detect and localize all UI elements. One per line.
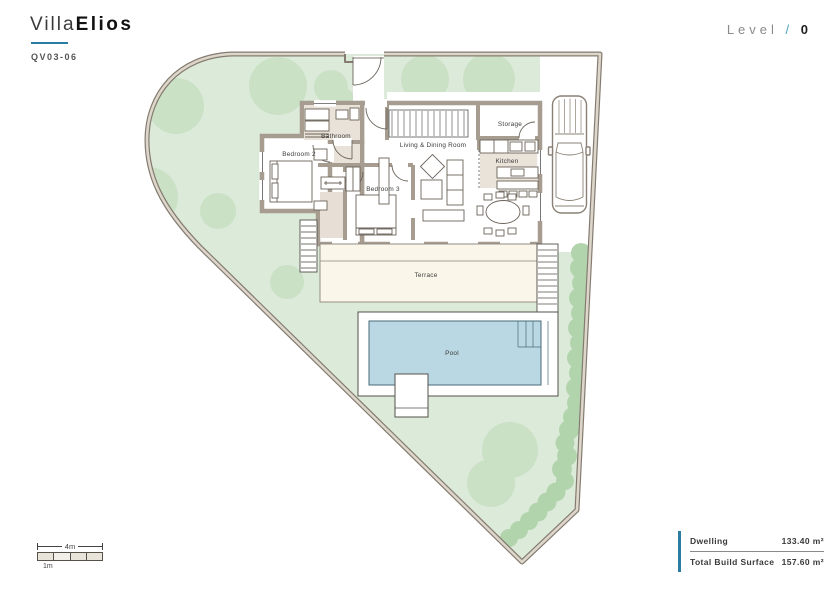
brand-bold: Elios xyxy=(76,14,134,35)
summary-value: 133.40 m² xyxy=(782,536,824,546)
scale-ruler: 4m xyxy=(37,542,103,551)
area-summary: Dwelling 133.40 m² Total Build Surface 1… xyxy=(678,531,824,572)
bench xyxy=(423,210,464,221)
sink xyxy=(350,108,359,120)
scale-total-label: 4m xyxy=(62,542,78,551)
scale-segment xyxy=(71,553,87,560)
nightstand xyxy=(314,149,327,160)
summary-row-total: Total Build Surface 157.60 m² xyxy=(690,552,824,572)
staircase xyxy=(389,110,468,137)
car xyxy=(549,96,591,213)
steps-left xyxy=(300,220,317,272)
level-separator: / xyxy=(786,22,794,37)
sofa xyxy=(447,160,463,205)
scale-segments xyxy=(37,552,103,561)
label-kitchen: Kitchen xyxy=(495,158,518,165)
brand-title: VillaElios xyxy=(30,14,133,36)
label-living: Living & Dining Room xyxy=(400,142,466,149)
summary-value: 157.60 m² xyxy=(782,557,824,567)
floor-plan-page: Bathroom Bedroom 2 Bedroom 3 Living & Di… xyxy=(0,0,840,591)
toilet xyxy=(336,110,348,119)
scale-unit-label: 1m xyxy=(43,563,103,570)
label-bedroom3: Bedroom 3 xyxy=(366,186,400,193)
level-indicator: Level / 0 xyxy=(727,22,812,37)
level-value: 0 xyxy=(801,22,812,37)
dryer xyxy=(305,121,329,131)
brand-light: Villa xyxy=(30,14,76,35)
cooktop xyxy=(511,169,524,176)
scale-segment xyxy=(54,553,70,560)
label-storage: Storage xyxy=(498,121,522,128)
label-bathroom: Bathroom xyxy=(321,133,351,140)
label-terrace: Terrace xyxy=(414,272,437,279)
coffee-table xyxy=(421,180,442,199)
tv-unit xyxy=(379,158,389,204)
breakfast-bar xyxy=(497,181,538,189)
label-bedroom2: Bedroom 2 xyxy=(282,151,316,158)
dining-table xyxy=(486,201,520,224)
plan-reference: QV03-06 xyxy=(31,52,78,62)
summary-row-dwelling: Dwelling 133.40 m² xyxy=(690,531,824,551)
pool-platform xyxy=(395,374,428,417)
nightstand xyxy=(314,201,327,210)
scale-segment xyxy=(38,553,54,560)
label-pool: Pool xyxy=(445,350,459,357)
steps-right xyxy=(537,244,558,312)
scale-segment xyxy=(87,553,102,560)
scale-bar: 4m 1m xyxy=(37,542,103,570)
washer xyxy=(305,109,329,120)
summary-label: Dwelling xyxy=(690,536,728,546)
scale-tick-right xyxy=(102,543,103,550)
level-label: Level xyxy=(727,22,778,37)
scale-line xyxy=(78,546,102,547)
site-plan-drawing: Bathroom Bedroom 2 Bedroom 3 Living & Di… xyxy=(0,0,840,591)
brand-underline xyxy=(31,42,68,44)
scale-line xyxy=(38,546,62,547)
summary-label: Total Build Surface xyxy=(690,557,774,567)
